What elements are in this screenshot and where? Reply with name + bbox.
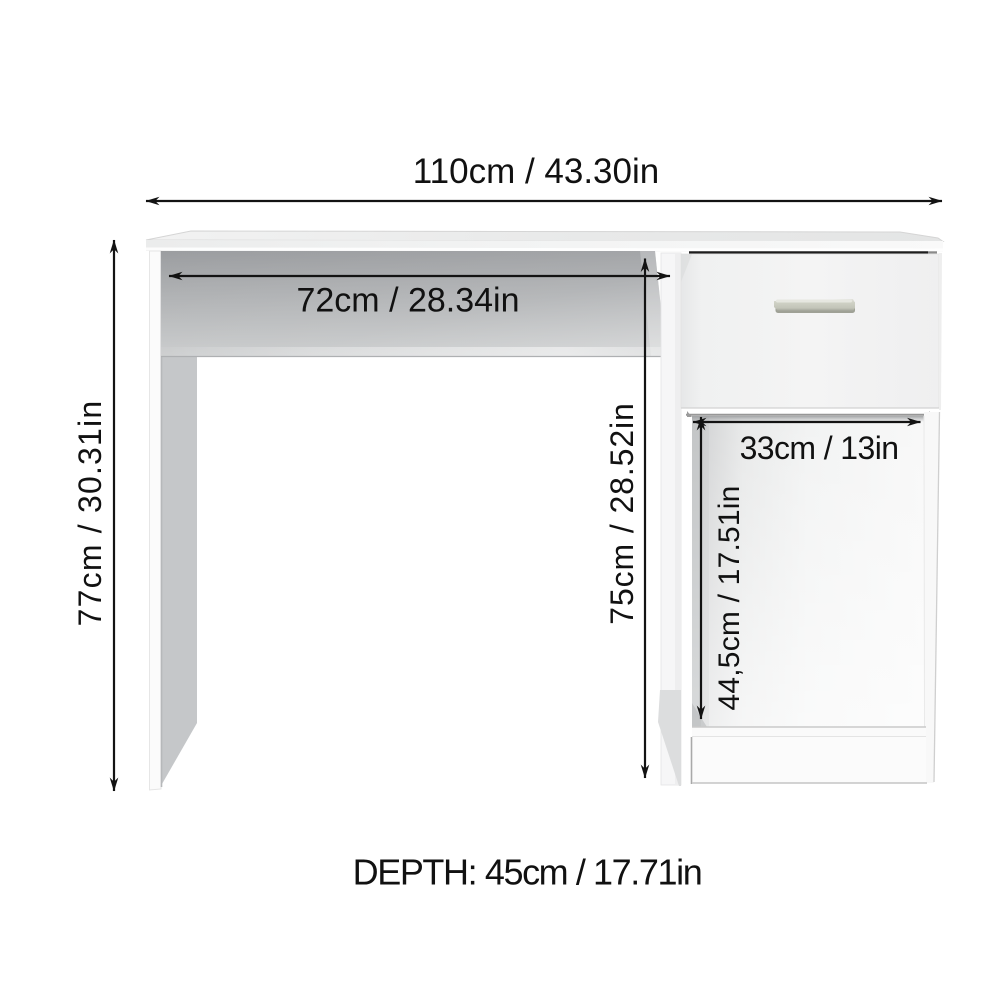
svg-text:72cm / 28.34in: 72cm / 28.34in [296,282,519,320]
svg-text:75cm / 28.52in: 75cm / 28.52in [604,402,640,625]
svg-text:77cm / 30.31in: 77cm / 30.31in [72,400,108,627]
svg-text:33cm / 13in: 33cm / 13in [740,430,899,466]
svg-text:DEPTH: 45cm / 17.71in: DEPTH: 45cm / 17.71in [353,852,702,893]
svg-text:110cm / 43.30in: 110cm / 43.30in [413,152,659,191]
svg-text:44,5cm / 17.51in: 44,5cm / 17.51in [713,485,746,710]
